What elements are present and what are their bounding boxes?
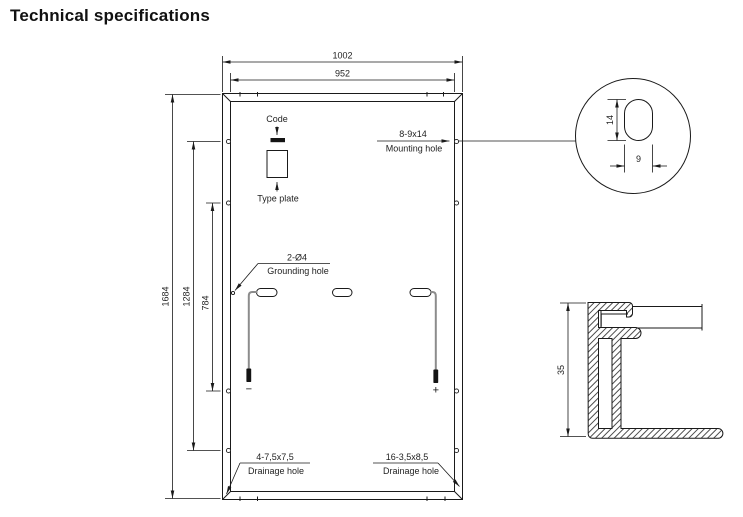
mounting-slot bbox=[625, 100, 653, 141]
junction-box-right bbox=[410, 289, 431, 297]
grounding-hole-mark bbox=[231, 291, 234, 294]
code-sticker bbox=[271, 138, 286, 142]
mounting-hole-detail-view: 14 9 bbox=[459, 79, 691, 194]
mounting-hole-size: 8-9x14 bbox=[399, 129, 427, 139]
height-dimensions: 1684 1284 784 bbox=[161, 95, 221, 499]
mounting-hole-mark bbox=[226, 448, 230, 452]
connector-negative bbox=[246, 369, 251, 383]
slot-length-value: 14 bbox=[605, 115, 615, 125]
panel-rear-view: 1002 952 1684 1284 784 Code bbox=[161, 51, 463, 502]
mounting-hole-mark bbox=[454, 201, 458, 205]
drainage-right-size: 16-3,5x8,5 bbox=[386, 452, 429, 462]
drainage-right-label: Drainage hole bbox=[383, 466, 439, 476]
dim-inner-width: 952 bbox=[335, 69, 350, 79]
grounding-hole-size: 2-Ø4 bbox=[287, 253, 307, 263]
negative-polarity-label: − bbox=[246, 384, 252, 396]
frame-height-value: 35 bbox=[556, 365, 566, 375]
slot-width-value: 9 bbox=[636, 154, 641, 164]
drainage-left-size: 4-7,5x7,5 bbox=[256, 452, 294, 462]
type-plate-label: Type plate bbox=[257, 194, 299, 204]
positive-polarity-label: + bbox=[433, 385, 439, 397]
junction-box-middle bbox=[333, 289, 353, 297]
connector-positive bbox=[433, 370, 438, 384]
technical-drawing: 1002 952 1684 1284 784 Code bbox=[0, 0, 743, 517]
technical-specifications-page: Technical specifications bbox=[0, 0, 743, 517]
junction-box-left bbox=[257, 289, 278, 297]
mounting-hole-mark bbox=[454, 389, 458, 393]
mounting-hole-mark bbox=[454, 448, 458, 452]
type-plate bbox=[267, 151, 288, 178]
code-label: Code bbox=[266, 114, 288, 124]
mounting-hole-mark bbox=[226, 139, 230, 143]
dim-outer-width: 1002 bbox=[332, 51, 352, 61]
mounting-hole-mark bbox=[454, 139, 458, 143]
mounting-hole-label: Mounting hole bbox=[386, 144, 443, 154]
dim-mount-span-outer: 1284 bbox=[182, 286, 192, 306]
width-dimensions: 1002 952 bbox=[223, 51, 463, 93]
drainage-left-label: Drainage hole bbox=[248, 466, 304, 476]
frame-height-dimension: 35 bbox=[556, 303, 586, 437]
mounting-hole-mark bbox=[226, 389, 230, 393]
mounting-hole-mark bbox=[226, 201, 230, 205]
dim-mount-span-inner: 784 bbox=[201, 295, 211, 310]
dim-outer-height: 1684 bbox=[161, 286, 171, 306]
frame-cross-section: 35 bbox=[556, 303, 723, 439]
grounding-hole-label: Grounding hole bbox=[267, 266, 329, 276]
